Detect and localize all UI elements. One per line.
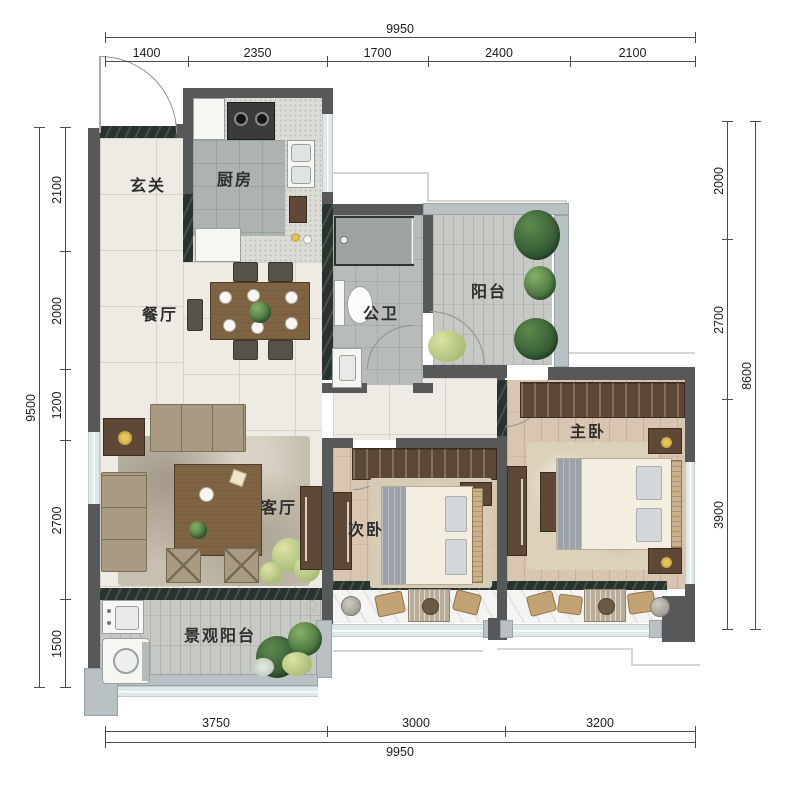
stove — [227, 102, 275, 140]
dim-value: 3750 — [105, 716, 327, 730]
ottoman — [224, 548, 259, 583]
dim-value: 3000 — [327, 716, 505, 730]
tv-cabinet — [507, 466, 527, 556]
balcony-corridor-wall — [423, 365, 507, 378]
dim-value: 1400 — [105, 46, 188, 60]
bay-pier — [500, 620, 513, 638]
coffee-machine — [289, 196, 307, 223]
master-label: 主卧 — [570, 418, 606, 442]
dishwasher — [195, 228, 241, 262]
plate — [199, 487, 214, 502]
dining-chair — [233, 262, 258, 282]
dim-value: 3200 — [505, 716, 695, 730]
dim-value: 2100 — [50, 128, 64, 252]
building-outline — [328, 172, 428, 174]
napkin — [229, 469, 247, 487]
sink-basin — [115, 606, 139, 630]
dim-value: 9950 — [105, 22, 695, 36]
nightstand — [648, 428, 682, 454]
tv-cabinet — [300, 486, 322, 570]
table-plant — [189, 521, 207, 539]
kitchen-top-wall — [183, 88, 333, 98]
burner-icon — [255, 112, 269, 126]
dining-table — [210, 282, 310, 340]
building-outline — [631, 664, 700, 666]
centerpiece-plant — [249, 301, 271, 323]
kitchen-wall-marble — [183, 194, 193, 262]
gold-bowl-icon — [118, 431, 132, 445]
bathroom-bottom-wall — [413, 383, 433, 393]
sink-basin — [291, 144, 311, 162]
bay-pier — [649, 620, 662, 638]
lamp-icon — [661, 437, 672, 448]
bedroom2-bay-window — [332, 624, 483, 637]
master-bed — [556, 458, 684, 550]
washer-drum-icon — [113, 648, 139, 674]
faucet-icon — [107, 609, 111, 613]
plant-ring-icon — [306, 600, 317, 611]
bedroom2-label: 次卧 — [348, 516, 384, 540]
tray-plate — [422, 598, 439, 615]
plant — [428, 330, 466, 362]
dim-bottom-segments: 3750 3000 3200 — [105, 716, 695, 732]
sofa — [101, 472, 147, 572]
dish — [291, 233, 300, 242]
shower — [334, 216, 414, 266]
building-outline — [333, 650, 483, 652]
toilet-tank — [334, 280, 345, 326]
building-outline — [497, 648, 633, 650]
bathroom-sink — [332, 348, 362, 388]
sink-basin — [339, 355, 356, 381]
view-balcony-label: 景观阳台 — [184, 622, 256, 646]
plant — [288, 622, 322, 656]
dish — [303, 235, 312, 244]
headboard — [671, 460, 682, 548]
washer-panel — [142, 642, 149, 681]
burner-icon — [234, 112, 248, 126]
bathroom-top-wall — [333, 204, 433, 215]
plant — [514, 210, 560, 260]
dim-value: 2100 — [570, 46, 695, 60]
kitchen-cabinet — [193, 98, 225, 140]
plate — [285, 291, 298, 304]
master-bay-window — [513, 624, 649, 637]
dim-value: 3900 — [712, 400, 726, 630]
plate — [223, 319, 236, 332]
building-outline — [427, 200, 567, 202]
plant — [514, 318, 558, 360]
faucet-icon — [107, 621, 111, 625]
bed-blanket — [557, 459, 582, 549]
master-top-wall — [497, 367, 505, 380]
dim-left-segments: 1500 2700 1200 2000 2100 — [50, 128, 66, 688]
ottoman — [166, 548, 201, 583]
bathroom-right-wall — [423, 215, 433, 313]
sink-basin — [291, 166, 311, 184]
entry-label: 玄关 — [130, 172, 166, 196]
dim-value: 2700 — [50, 441, 64, 600]
bath-label: 公卫 — [363, 300, 399, 324]
cabinet-handle — [305, 497, 307, 561]
dim-value: 2000 — [50, 252, 64, 370]
left-exterior-wall — [88, 128, 100, 680]
dim-top-total: 9950 — [105, 22, 695, 38]
master-top-wall — [548, 367, 695, 380]
plant — [260, 562, 282, 584]
headboard — [472, 488, 483, 583]
dining-chair — [268, 262, 293, 282]
bedroom2-bed — [381, 486, 485, 585]
wardrobe — [352, 448, 497, 480]
bedroom2-top-wall — [396, 438, 497, 448]
entry-door-arc — [100, 56, 177, 133]
dining-chair — [187, 299, 203, 331]
plate — [251, 321, 264, 334]
kitchen-label: 厨房 — [217, 166, 253, 190]
dim-value: 2700 — [712, 240, 726, 400]
flower-cluster — [252, 658, 274, 676]
cabinet-handle — [521, 479, 523, 545]
dim-value: 2000 — [712, 122, 726, 240]
dim-right-total: 8600 — [740, 122, 756, 630]
balcony-label: 阳台 — [471, 278, 507, 302]
living-window — [88, 432, 100, 504]
dim-value: 1500 — [50, 600, 64, 688]
laundry-sink — [102, 600, 144, 634]
dim-value: 2400 — [428, 46, 570, 60]
living-label: 客厅 — [261, 494, 297, 518]
tray-plate — [598, 598, 615, 615]
dim-right-segments: 3900 2700 2000 — [712, 122, 728, 630]
dining-chair — [233, 340, 258, 360]
dim-left-total: 9500 — [24, 128, 40, 688]
pillow — [636, 466, 662, 500]
plant — [282, 652, 312, 676]
pillow — [445, 539, 467, 575]
building-outline — [427, 172, 429, 202]
dim-top-segments: 1400 2350 1700 2400 2100 — [105, 46, 695, 62]
plate — [285, 317, 298, 330]
kitchen-sink — [287, 140, 315, 188]
wardrobe — [520, 382, 685, 418]
bay-cushion — [557, 593, 583, 615]
bay-tray-table — [584, 589, 626, 622]
side-table — [103, 418, 145, 456]
dim-value: 2350 — [188, 46, 327, 60]
washing-machine — [102, 638, 150, 684]
pillow — [636, 508, 662, 542]
dim-value: 8600 — [740, 122, 754, 630]
sofa — [150, 404, 246, 452]
entry-door-leaf — [99, 56, 101, 133]
bay-pouf — [341, 596, 361, 616]
building-outline — [565, 352, 695, 354]
dim-bottom-total: 9950 — [105, 742, 695, 758]
bay-tray-table — [408, 589, 450, 622]
living-bedroom2-wall — [322, 438, 333, 590]
floor-plan: 玄关 厨房 餐厅 公卫 阳台 客厅 次卧 主卧 景观阳台 9950 1400 2… — [0, 0, 800, 796]
dining-label: 餐厅 — [142, 301, 178, 325]
dim-value: 9950 — [105, 745, 695, 759]
dim-value: 1200 — [50, 370, 64, 441]
coffee-table — [174, 464, 262, 556]
dining-chair — [268, 340, 293, 360]
view-balcony-window — [116, 686, 318, 697]
bed-bench — [540, 472, 557, 532]
bedroom2-top-wall — [333, 438, 353, 448]
dim-value: 9500 — [24, 128, 38, 688]
living-balcony-sill — [100, 588, 322, 600]
lamp-icon — [661, 557, 672, 568]
master-window — [685, 462, 695, 584]
kitchen-window — [322, 114, 333, 192]
shower-head-icon — [340, 236, 348, 244]
plate — [219, 291, 232, 304]
dim-value: 1700 — [327, 46, 428, 60]
nightstand — [648, 548, 682, 574]
bay-pouf — [650, 597, 670, 617]
plant — [524, 266, 556, 300]
pillow — [445, 496, 467, 532]
shower-glass — [411, 218, 414, 264]
bed-blanket — [382, 487, 406, 584]
